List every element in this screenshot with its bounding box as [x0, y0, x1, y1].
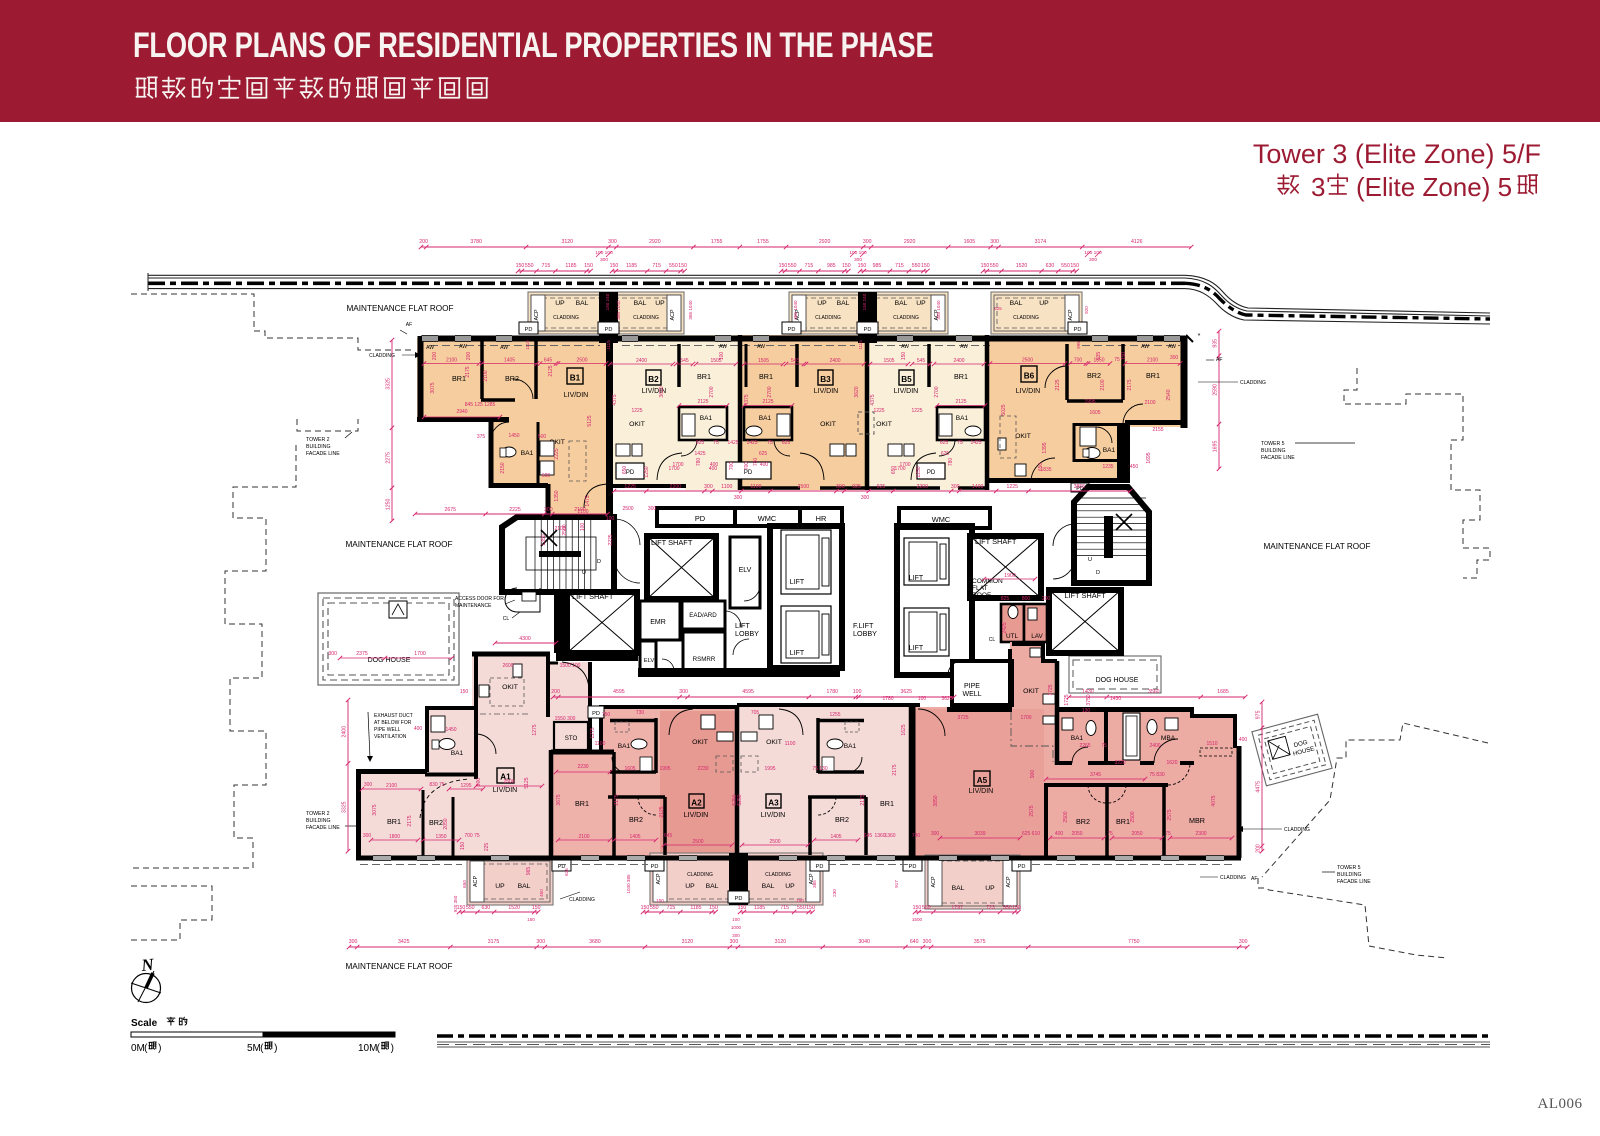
svg-text:550: 550 [650, 905, 659, 911]
svg-text:3560: 3560 [1148, 689, 1160, 695]
svg-text:BAL: BAL [634, 300, 647, 307]
svg-text:715: 715 [667, 905, 676, 911]
svg-text:1405: 1405 [830, 834, 841, 840]
svg-text:HR: HR [816, 514, 827, 523]
svg-text:4375: 4375 [744, 394, 750, 405]
svg-text:OKIT: OKIT [876, 421, 892, 428]
svg-text:5125: 5125 [587, 415, 593, 426]
svg-text:BR1: BR1 [954, 372, 968, 381]
svg-text:LIV/DIN: LIV/DIN [969, 788, 994, 795]
svg-text:BR2: BR2 [629, 815, 643, 824]
svg-text:3040: 3040 [858, 939, 870, 945]
svg-text:AF: AF [1251, 876, 1257, 882]
svg-text:EXHAUST DUCT: EXHAUST DUCT [374, 713, 413, 719]
svg-text:5025: 5025 [1001, 404, 1007, 415]
svg-text:300: 300 [1089, 257, 1097, 263]
svg-text:PD: PD [816, 864, 824, 870]
svg-text:400: 400 [710, 462, 719, 468]
svg-text:300: 300 [679, 689, 688, 695]
svg-text:BR1: BR1 [575, 799, 589, 808]
svg-text:OKIT: OKIT [1015, 433, 1031, 440]
svg-text:100: 100 [732, 917, 740, 922]
svg-text:150: 150 [921, 263, 930, 269]
svg-text:150: 150 [1070, 263, 1079, 269]
svg-text:625: 625 [994, 306, 1002, 311]
svg-text:4475: 4475 [1256, 781, 1262, 793]
svg-text:400: 400 [1239, 737, 1248, 743]
svg-text:2100: 2100 [386, 783, 397, 789]
svg-text:75: 75 [767, 440, 773, 446]
svg-text:2175: 2175 [860, 794, 866, 805]
svg-text:3325: 3325 [342, 801, 348, 813]
svg-text:LAV: LAV [1031, 633, 1043, 640]
svg-text:4126: 4126 [1131, 239, 1143, 245]
svg-text:300: 300 [990, 239, 999, 245]
svg-text:300: 300 [544, 507, 553, 513]
svg-text:TOWER 5: TOWER 5 [1261, 441, 1285, 447]
svg-text:(Elite Zone) 5: (Elite Zone) 5 [1356, 172, 1512, 202]
svg-text:2400: 2400 [636, 358, 647, 364]
svg-text:2540: 2540 [1166, 389, 1172, 400]
svg-text:300: 300 [732, 933, 740, 938]
svg-text:1700: 1700 [414, 651, 426, 657]
svg-text:75: 75 [1165, 831, 1171, 837]
svg-text:CLADDING: CLADDING [765, 872, 791, 878]
svg-text:3750: 3750 [1086, 694, 1092, 705]
svg-text:LIFT SHAFT: LIFT SHAFT [572, 592, 614, 601]
svg-text:BAL: BAL [762, 883, 775, 890]
svg-text:300: 300 [734, 495, 743, 501]
svg-text:625: 625 [782, 440, 791, 446]
svg-text:2100: 2100 [577, 509, 588, 515]
svg-text:BR2: BR2 [1087, 371, 1101, 380]
svg-text:715: 715 [542, 263, 551, 269]
svg-text:2125: 2125 [548, 365, 554, 376]
svg-text:FACADE LINE: FACADE LINE [1261, 455, 1295, 461]
svg-text:300: 300 [854, 257, 862, 263]
svg-text:3780: 3780 [470, 239, 482, 245]
svg-text:UP: UP [1039, 300, 1049, 307]
svg-text:705: 705 [751, 710, 760, 716]
svg-text:1800: 1800 [389, 834, 400, 840]
svg-text:150: 150 [641, 905, 650, 911]
svg-text:3680: 3680 [589, 939, 601, 945]
svg-text:1995: 1995 [659, 766, 670, 772]
svg-text:300: 300 [363, 833, 372, 839]
svg-text:1185: 1185 [754, 905, 765, 911]
svg-text:200: 200 [466, 352, 472, 361]
svg-text:150: 150 [1012, 905, 1021, 911]
svg-text:550: 550 [525, 263, 534, 269]
svg-text:150 240: 150 240 [605, 293, 610, 310]
svg-text:650: 650 [622, 466, 628, 475]
svg-text:1225: 1225 [1007, 484, 1019, 490]
svg-text:150: 150 [913, 905, 922, 911]
svg-text:2700: 2700 [709, 386, 715, 397]
svg-text:300: 300 [923, 939, 932, 945]
svg-text:OKIT: OKIT [502, 684, 518, 691]
svg-text:1700: 1700 [1020, 715, 1031, 721]
svg-text:1450: 1450 [445, 727, 456, 733]
svg-text:BUILDING: BUILDING [306, 818, 331, 824]
svg-text:3325: 3325 [386, 378, 392, 390]
svg-text:BR1: BR1 [387, 817, 401, 826]
svg-text:925: 925 [877, 484, 886, 490]
svg-text:625 610: 625 610 [1022, 831, 1040, 837]
svg-text:ELV: ELV [739, 567, 752, 574]
svg-text:BAL: BAL [837, 300, 850, 307]
svg-text:2400: 2400 [953, 358, 964, 364]
svg-text:1695: 1695 [1146, 452, 1152, 463]
svg-text:D: D [597, 559, 601, 565]
svg-text:ACP: ACP [1006, 876, 1012, 887]
svg-text:450: 450 [539, 889, 544, 897]
svg-text:BA1: BA1 [618, 743, 631, 750]
svg-text:550: 550 [466, 905, 475, 911]
svg-text:225: 225 [484, 843, 490, 852]
svg-text:2100: 2100 [483, 370, 489, 381]
svg-text:BAL: BAL [952, 885, 965, 892]
svg-text:1350: 1350 [554, 490, 560, 501]
svg-text:1995: 1995 [1084, 399, 1095, 405]
svg-text:3075: 3075 [372, 804, 378, 815]
svg-text:PD: PD [927, 470, 936, 476]
svg-text:1500: 1500 [912, 917, 923, 922]
svg-text:BAL: BAL [1010, 300, 1023, 307]
svg-text:BA1: BA1 [1071, 735, 1084, 742]
svg-text:550: 550 [912, 263, 921, 269]
svg-text:300: 300 [536, 939, 545, 945]
svg-text:1700: 1700 [672, 462, 683, 468]
svg-text:MAINTENANCE FLAT ROOF: MAINTENANCE FLAT ROOF [345, 962, 452, 971]
svg-text:B6: B6 [1024, 372, 1035, 381]
svg-text:LIFT SHAFT: LIFT SHAFT [1064, 591, 1106, 600]
svg-text:2500: 2500 [576, 357, 587, 363]
svg-text:645: 645 [864, 833, 873, 839]
svg-text:75 130: 75 130 [812, 766, 828, 772]
svg-text:): ) [158, 1043, 161, 1054]
svg-text:MAINTENANCE FLAT ROOF: MAINTENANCE FLAT ROOF [1263, 542, 1370, 551]
svg-text:MAINTENANCE FLAT ROOF: MAINTENANCE FLAT ROOF [345, 540, 452, 549]
svg-text:75: 75 [713, 440, 719, 446]
svg-text:1235: 1235 [1102, 464, 1113, 470]
svg-text:CL: CL [989, 637, 996, 643]
svg-text:2125: 2125 [955, 399, 966, 405]
svg-text:535: 535 [1096, 352, 1102, 361]
svg-text:4595: 4595 [742, 689, 754, 695]
svg-text:PD: PD [695, 514, 705, 523]
svg-text:920 350: 920 350 [453, 895, 458, 912]
svg-text:AW: AW [459, 344, 467, 350]
svg-text:3625: 3625 [941, 696, 952, 702]
svg-text:LIFT: LIFT [790, 579, 805, 586]
svg-text:*: * [1198, 333, 1201, 340]
svg-text:200: 200 [419, 239, 428, 245]
svg-text:300: 300 [704, 484, 713, 490]
svg-text:630: 630 [481, 905, 490, 911]
svg-text:ELV: ELV [644, 658, 655, 664]
svg-text:100: 100 [719, 352, 725, 361]
svg-text:3220: 3220 [1114, 760, 1125, 766]
svg-text:2225: 2225 [554, 448, 560, 459]
svg-text:715: 715 [895, 263, 904, 269]
svg-text:BA1: BA1 [700, 415, 713, 422]
svg-text:1505: 1505 [758, 358, 769, 364]
svg-text:UP: UP [555, 300, 565, 307]
svg-text:750: 750 [602, 712, 611, 718]
svg-text:CLADDING: CLADDING [1240, 380, 1266, 386]
svg-text:3850: 3850 [933, 795, 939, 806]
svg-text:LIV/DIN: LIV/DIN [761, 812, 786, 819]
svg-text:900: 900 [476, 778, 482, 787]
svg-text:CLADDING: CLADDING [1284, 827, 1310, 833]
svg-text:CL: CL [503, 616, 510, 622]
svg-text:150: 150 [656, 898, 664, 903]
svg-text:1620: 1620 [1166, 760, 1177, 766]
svg-text:ACP: ACP [1068, 309, 1074, 320]
svg-text:PD: PD [735, 896, 743, 902]
svg-text:CLADDING: CLADDING [369, 353, 395, 359]
svg-text:2400: 2400 [342, 726, 348, 738]
svg-text:OKIT: OKIT [766, 739, 782, 746]
svg-text:150: 150 [527, 917, 535, 922]
svg-text:AW: AW [901, 344, 909, 350]
svg-text:2175: 2175 [465, 366, 471, 377]
svg-text:PD: PD [525, 327, 533, 333]
svg-text:830 75: 830 75 [429, 782, 445, 788]
svg-text:2500: 2500 [769, 839, 780, 845]
svg-text:200: 200 [551, 689, 560, 695]
svg-text:150: 150 [981, 263, 990, 269]
svg-text:BAL: BAL [895, 300, 908, 307]
svg-text:LIFT: LIFT [909, 645, 924, 652]
svg-text:2100: 2100 [1144, 400, 1155, 406]
svg-text:BA1: BA1 [451, 750, 464, 757]
svg-text:1350: 1350 [541, 534, 547, 545]
svg-text:1520: 1520 [1016, 263, 1028, 269]
svg-text:BR1: BR1 [697, 372, 711, 381]
svg-text:UP: UP [685, 883, 695, 890]
svg-text:WELL: WELL [962, 691, 981, 698]
svg-text:300: 300 [863, 239, 872, 245]
svg-text:BAL: BAL [518, 883, 531, 890]
svg-text:150: 150 [901, 352, 907, 361]
svg-text:ROOF: ROOF [972, 592, 991, 599]
svg-text:385 1040: 385 1040 [793, 300, 798, 320]
svg-text:75: 75 [1114, 357, 1120, 363]
svg-text:A2: A2 [691, 799, 702, 808]
svg-text:AW: AW [500, 345, 508, 351]
svg-text:AF: AF [406, 322, 412, 328]
svg-text:3620: 3620 [659, 386, 665, 397]
svg-text:2265: 2265 [1079, 743, 1090, 749]
svg-text:150: 150 [858, 263, 867, 269]
svg-text:EMR: EMR [650, 619, 666, 626]
svg-text:100: 100 [853, 689, 862, 695]
svg-text:550: 550 [990, 263, 999, 269]
svg-text:2590: 2590 [1213, 384, 1219, 396]
svg-text:MAINTENANCE: MAINTENANCE [455, 603, 492, 609]
svg-text:7750: 7750 [1128, 939, 1140, 945]
svg-text:0M: 0M [131, 1043, 145, 1054]
svg-text:2375: 2375 [356, 651, 368, 657]
svg-text:A5: A5 [977, 776, 988, 785]
svg-text:TOWER 2: TOWER 2 [306, 437, 330, 443]
svg-text:AF: AF [1216, 357, 1222, 363]
svg-text:2400: 2400 [1149, 743, 1160, 749]
svg-text:2175: 2175 [614, 794, 620, 805]
svg-text:DOG HOUSE: DOG HOUSE [1096, 677, 1139, 684]
svg-text:3120: 3120 [682, 939, 694, 945]
svg-text:723: 723 [986, 905, 995, 911]
svg-text:2500: 2500 [1130, 811, 1136, 822]
svg-text:UP: UP [785, 883, 795, 890]
svg-text:780: 780 [696, 458, 702, 467]
svg-text:WMC: WMC [758, 514, 777, 523]
svg-text:1425: 1425 [746, 440, 757, 446]
svg-text:3620: 3620 [854, 386, 860, 397]
svg-text:ACP: ACP [534, 309, 540, 320]
svg-text:300: 300 [931, 831, 940, 837]
svg-text:650: 650 [891, 466, 897, 475]
svg-text:400: 400 [760, 462, 769, 468]
svg-text:780: 780 [753, 458, 759, 467]
svg-text:640: 640 [910, 939, 919, 945]
svg-text:700: 700 [729, 462, 735, 471]
svg-text:700: 700 [1074, 357, 1083, 363]
svg-text:625: 625 [940, 440, 949, 446]
svg-text:300: 300 [1170, 355, 1179, 361]
svg-text:PD: PD [1074, 327, 1082, 333]
svg-text:300: 300 [951, 484, 960, 490]
svg-text:545: 545 [680, 358, 689, 364]
svg-text:625: 625 [696, 440, 705, 446]
svg-text:LIV/DIN: LIV/DIN [1016, 388, 1041, 395]
svg-text:975: 975 [1256, 710, 1262, 719]
svg-text:300: 300 [364, 782, 373, 788]
svg-text:LIV/DIN: LIV/DIN [814, 388, 839, 395]
svg-text:LIFT SHAFT: LIFT SHAFT [975, 537, 1017, 546]
svg-text:150: 150 [1121, 352, 1127, 361]
svg-text:1115: 1115 [525, 340, 530, 350]
svg-text:BA1: BA1 [1103, 447, 1116, 454]
svg-text:2600: 2600 [502, 663, 513, 669]
svg-text:400: 400 [1055, 831, 1064, 837]
svg-text:150: 150 [738, 905, 747, 911]
svg-text:1360: 1360 [884, 833, 895, 839]
svg-text:1550 300: 1550 300 [555, 716, 576, 722]
svg-text:BR2: BR2 [429, 818, 443, 827]
svg-text:OKIT: OKIT [629, 421, 645, 428]
svg-text:RSMRR: RSMRR [693, 656, 716, 663]
svg-text:715: 715 [652, 263, 661, 269]
svg-text:75: 75 [1107, 831, 1113, 837]
svg-text:2500: 2500 [798, 484, 810, 490]
svg-text:1250: 1250 [644, 466, 650, 477]
svg-text:D: D [1096, 570, 1100, 576]
svg-text:UP: UP [655, 300, 665, 307]
svg-text:10M: 10M [358, 1043, 377, 1054]
svg-text:1425: 1425 [694, 451, 705, 457]
svg-text:300: 300 [836, 484, 845, 490]
svg-text:1115: 1115 [858, 340, 863, 350]
svg-text:3575: 3575 [974, 939, 986, 945]
svg-text:150: 150 [806, 905, 815, 911]
svg-text:CLADDING: CLADDING [687, 872, 713, 878]
svg-text:2225: 2225 [509, 507, 521, 513]
svg-text:2940: 2940 [456, 409, 467, 415]
svg-text:MAINTENANCE FLAT ROOF: MAINTENANCE FLAT ROOF [346, 304, 453, 313]
svg-text:2150: 2150 [500, 462, 506, 473]
svg-text:5250: 5250 [737, 794, 743, 805]
svg-text:1450: 1450 [508, 433, 519, 439]
svg-text:BR2: BR2 [505, 374, 519, 383]
svg-text:1685: 1685 [1217, 689, 1229, 695]
svg-text:2920: 2920 [649, 239, 661, 245]
svg-text:AT BELOW FOR: AT BELOW FOR [374, 720, 412, 726]
svg-text:4595: 4595 [613, 689, 625, 695]
svg-text:2050: 2050 [1071, 831, 1082, 837]
svg-text:LIFT: LIFT [790, 650, 805, 657]
svg-text:1797: 1797 [951, 905, 963, 911]
svg-text:Scale: Scale [131, 1018, 158, 1029]
svg-text:2230: 2230 [577, 764, 588, 770]
svg-text:FACADE LINE: FACADE LINE [306, 825, 340, 831]
svg-text:1400: 1400 [972, 484, 984, 490]
svg-text:1225: 1225 [624, 484, 636, 490]
svg-text:2050: 2050 [1131, 831, 1142, 837]
svg-text:2275: 2275 [386, 452, 392, 464]
svg-text:230: 230 [832, 889, 837, 897]
svg-text:917: 917 [894, 880, 899, 888]
svg-text:B1: B1 [570, 374, 581, 383]
svg-text:PD: PD [788, 327, 796, 333]
svg-text:150: 150 [709, 905, 718, 911]
svg-text:BA1: BA1 [956, 415, 969, 422]
svg-text:1250: 1250 [916, 466, 922, 477]
svg-text:1100: 1100 [721, 484, 732, 490]
svg-text:1275: 1275 [590, 727, 596, 738]
svg-text:BR1: BR1 [759, 372, 773, 381]
svg-text:BUILDING: BUILDING [306, 444, 331, 450]
svg-text:1520: 1520 [508, 905, 520, 911]
svg-text:1780: 1780 [827, 689, 839, 695]
svg-text:2675: 2675 [445, 507, 457, 513]
svg-text:PD: PD [651, 864, 659, 870]
svg-text:CLADDING: CLADDING [569, 897, 595, 903]
svg-text:450: 450 [1130, 464, 1139, 470]
svg-text:1625: 1625 [901, 724, 907, 735]
svg-text:ACP: ACP [473, 876, 479, 887]
svg-text:PIPE WELL: PIPE WELL [374, 727, 401, 733]
svg-text:2500: 2500 [692, 839, 703, 845]
svg-text:2125: 2125 [762, 399, 773, 405]
svg-text:400: 400 [414, 726, 423, 732]
svg-text:385 1040: 385 1040 [936, 300, 941, 320]
svg-text:1605: 1605 [964, 239, 976, 245]
svg-text:995: 995 [1076, 341, 1081, 349]
svg-text:2200: 2200 [916, 484, 928, 490]
svg-text:3120: 3120 [561, 239, 573, 245]
svg-text:OKIT: OKIT [1023, 688, 1039, 695]
svg-text:1225: 1225 [631, 408, 642, 414]
svg-text:BR1: BR1 [1116, 817, 1130, 826]
svg-text:75: 75 [1101, 743, 1107, 749]
svg-text:TOWER 5: TOWER 5 [1337, 865, 1361, 871]
svg-text:1405: 1405 [504, 357, 515, 363]
svg-text:CLADDING: CLADDING [815, 315, 841, 321]
svg-text:UP: UP [985, 885, 995, 892]
